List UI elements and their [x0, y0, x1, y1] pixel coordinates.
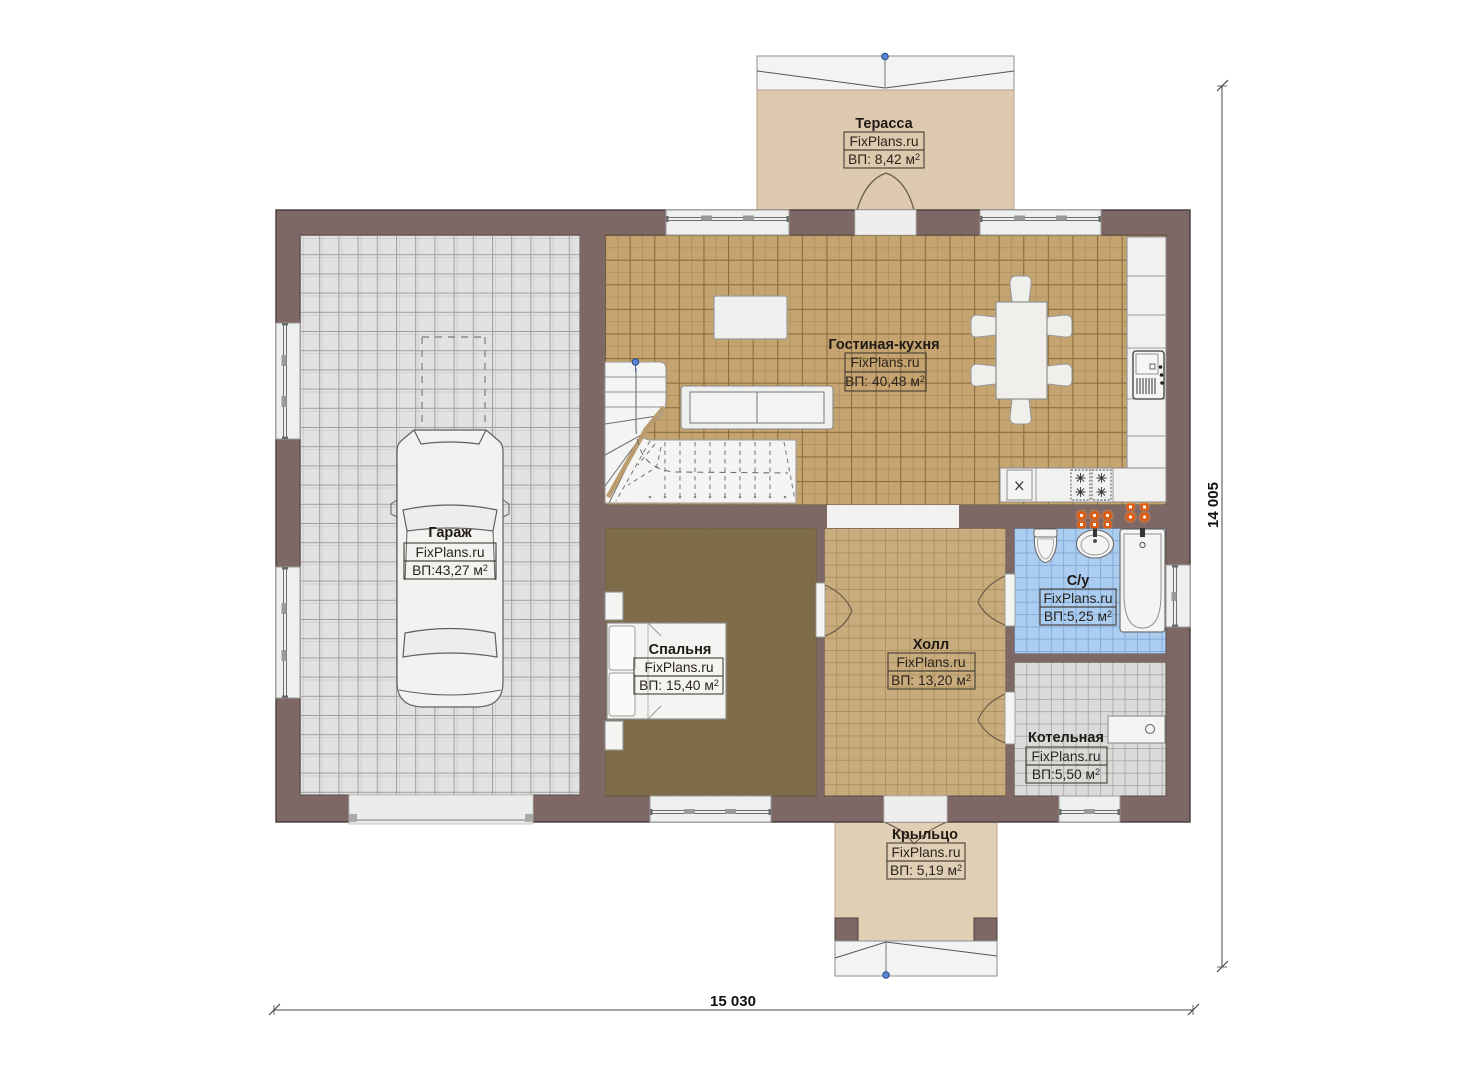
svg-text:FixPlans.ru: FixPlans.ru [849, 134, 918, 149]
svg-text:ВП: 8,42 м2: ВП: 8,42 м2 [848, 152, 920, 167]
svg-text:FixPlans.ru: FixPlans.ru [644, 660, 713, 675]
svg-text:Крыльцо: Крыльцо [892, 827, 958, 843]
svg-text:FixPlans.ru: FixPlans.ru [891, 845, 960, 860]
svg-text:С/у: С/у [1067, 573, 1090, 589]
svg-text:ВП: 15,40 м2: ВП: 15,40 м2 [639, 678, 719, 693]
svg-text:FixPlans.ru: FixPlans.ru [850, 355, 919, 370]
svg-text:ВП: 13,20 м2: ВП: 13,20 м2 [891, 673, 971, 688]
svg-text:Гараж: Гараж [428, 525, 472, 541]
svg-text:FixPlans.ru: FixPlans.ru [415, 545, 484, 560]
svg-text:Котельная: Котельная [1028, 730, 1104, 746]
svg-text:Спальня: Спальня [649, 642, 712, 658]
svg-text:FixPlans.ru: FixPlans.ru [1043, 591, 1112, 606]
svg-text:14 005: 14 005 [1205, 482, 1222, 528]
svg-text:15 030: 15 030 [710, 993, 756, 1010]
svg-text:ВП: 40,48 м2: ВП: 40,48 м2 [845, 374, 925, 389]
svg-text:Холл: Холл [913, 637, 949, 653]
svg-text:FixPlans.ru: FixPlans.ru [1031, 749, 1100, 764]
svg-text:ВП:5,25 м2: ВП:5,25 м2 [1044, 609, 1112, 624]
svg-text:ВП:43,27 м2: ВП:43,27 м2 [412, 563, 488, 578]
svg-text:FixPlans.ru: FixPlans.ru [896, 655, 965, 670]
svg-text:Терасса: Терасса [855, 116, 913, 132]
svg-text:ВП: 5,19 м2: ВП: 5,19 м2 [890, 863, 962, 878]
svg-text:ВП:5,50 м2: ВП:5,50 м2 [1032, 767, 1100, 782]
svg-text:Гостиная-кухня: Гостиная-кухня [828, 337, 939, 353]
